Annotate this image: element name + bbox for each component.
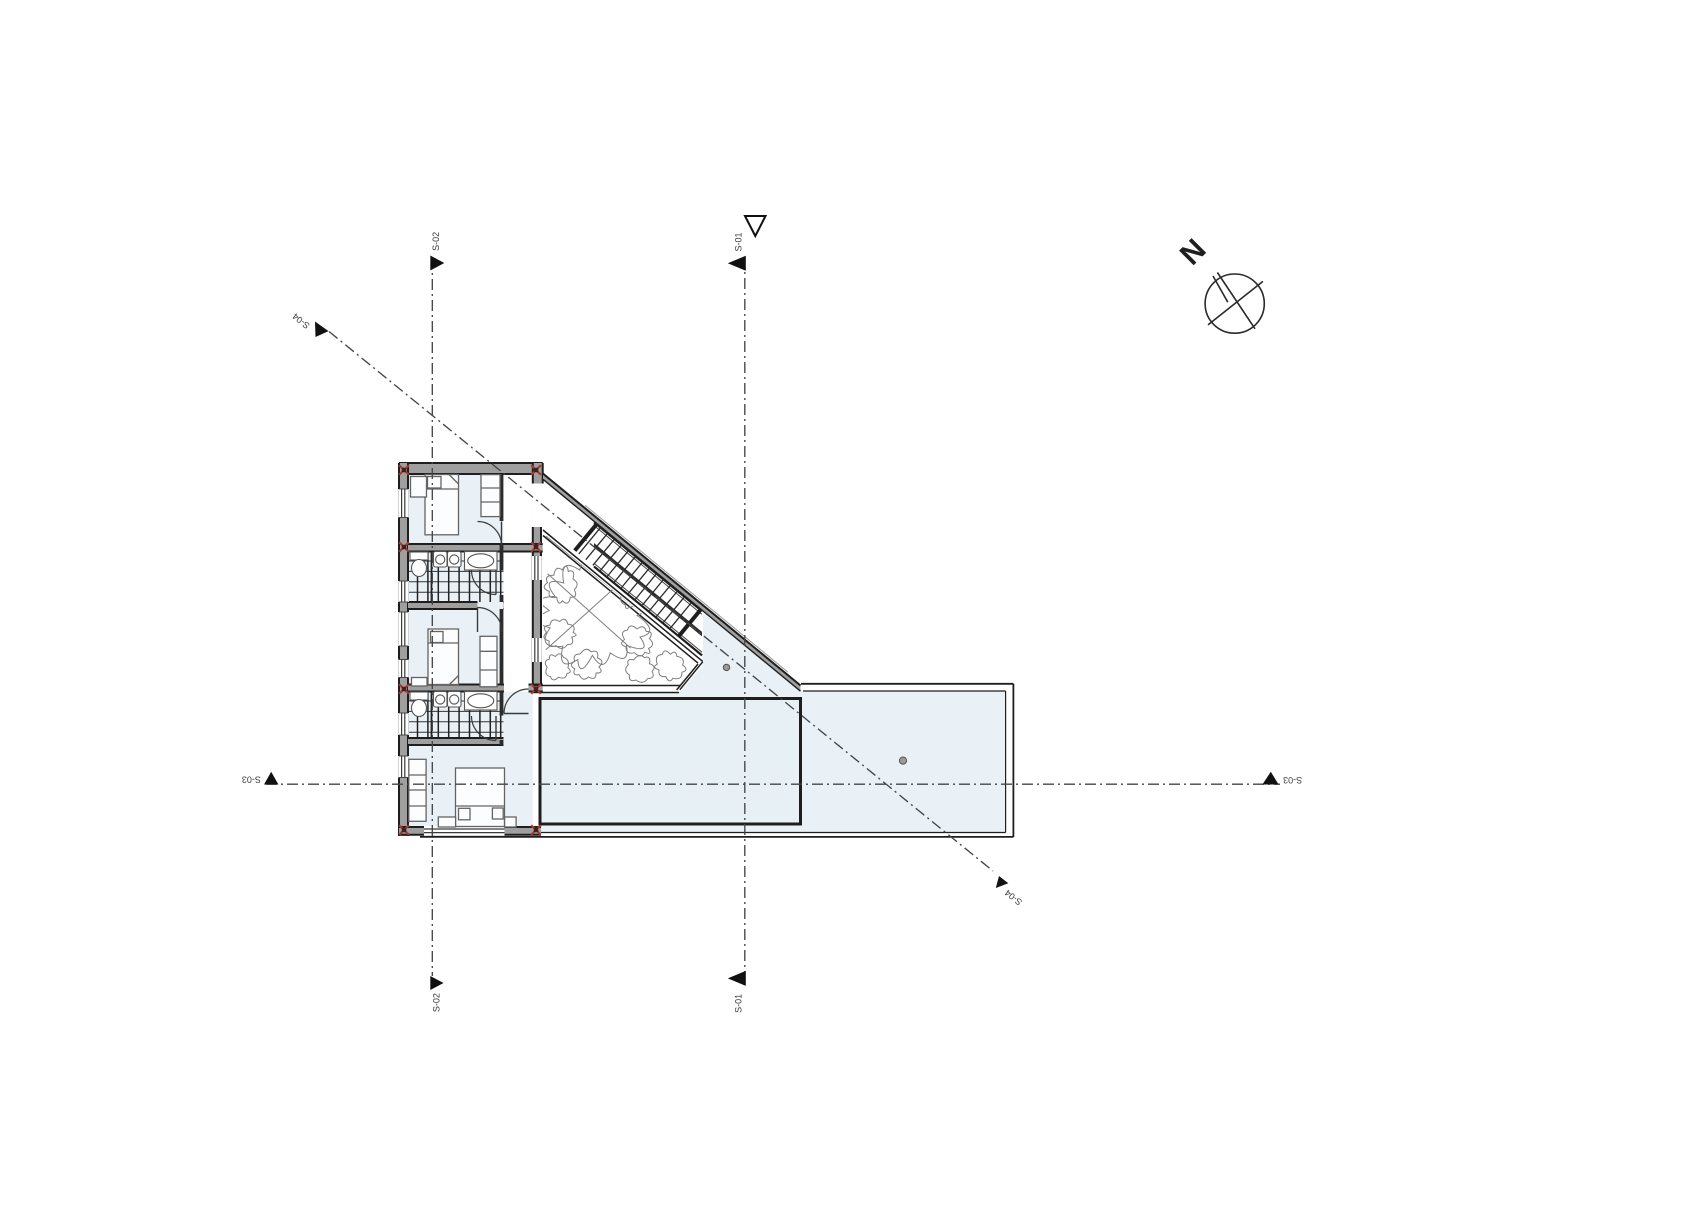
svg-text:S-01: S-01 <box>734 232 744 251</box>
svg-text:S-02: S-02 <box>431 993 441 1012</box>
svg-text:S-01: S-01 <box>734 994 744 1013</box>
svg-text:S-02: S-02 <box>431 232 441 251</box>
svg-text:S-03: S-03 <box>1283 775 1302 785</box>
svg-text:S-03: S-03 <box>242 775 261 785</box>
